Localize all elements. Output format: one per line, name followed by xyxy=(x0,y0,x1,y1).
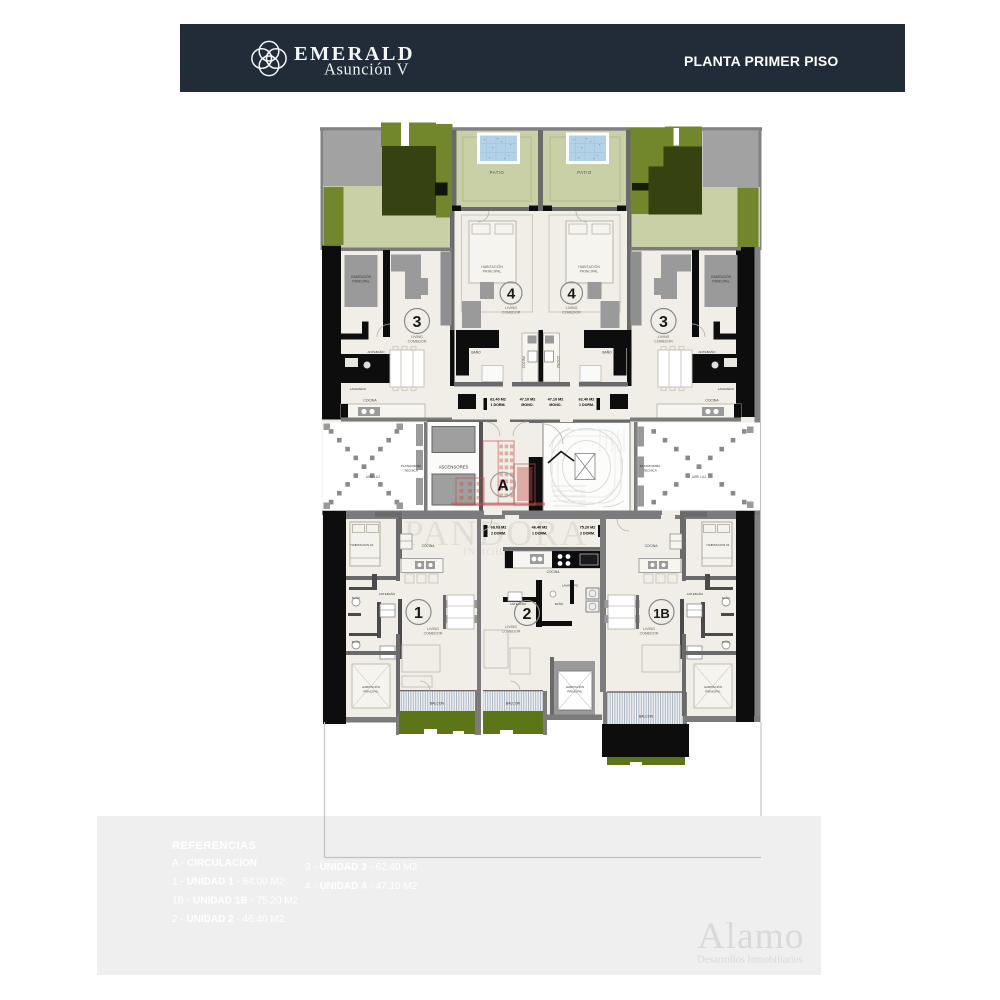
svg-text:PRINCIPAL: PRINCIPAL xyxy=(352,280,369,284)
svg-text:PLATAFORMA: PLATAFORMA xyxy=(640,464,661,468)
svg-text:LIVING: LIVING xyxy=(566,306,578,310)
svg-text:COMEDOR: COMEDOR xyxy=(562,311,581,315)
svg-text:47.10 M2: 47.10 M2 xyxy=(548,398,564,402)
svg-text:COCINA: COCINA xyxy=(522,355,526,368)
svg-text:LIVING: LIVING xyxy=(658,335,670,339)
svg-text:1 DORM.: 1 DORM. xyxy=(532,532,547,536)
svg-text:BAÑO: BAÑO xyxy=(352,639,361,644)
svg-text:BAÑO: BAÑO xyxy=(722,595,731,600)
svg-text:LIVING: LIVING xyxy=(505,306,517,310)
svg-text:BAÑO: BAÑO xyxy=(352,595,361,600)
svg-text:HABITACIÓN: HABITACIÓN xyxy=(481,264,503,269)
svg-text:BAÑO: BAÑO xyxy=(602,350,612,355)
svg-text:1 DORM.: 1 DORM. xyxy=(491,403,506,407)
svg-text:BAÑO: BAÑO xyxy=(471,350,481,355)
svg-text:4: 4 xyxy=(567,286,576,303)
svg-text:REFERENCIAS: REFERENCIAS xyxy=(172,840,256,852)
svg-text:A: A xyxy=(497,477,508,494)
svg-text:1 - UNIDAD 1 - 64.00 M2: 1 - UNIDAD 1 - 64.00 M2 xyxy=(172,877,285,888)
svg-text:COMEDOR: COMEDOR xyxy=(424,632,443,636)
svg-text:AIRE LUZ: AIRE LUZ xyxy=(692,475,706,479)
svg-text:A - CIRCULACION: A - CIRCULACION xyxy=(172,858,257,869)
svg-text:COMEDOR: COMEDOR xyxy=(408,340,427,344)
svg-text:PRINCIPAL: PRINCIPAL xyxy=(567,689,583,693)
svg-text:2 DORM.: 2 DORM. xyxy=(491,532,506,536)
svg-text:BALCON: BALCON xyxy=(430,702,444,706)
svg-text:COCINA: COCINA xyxy=(556,356,560,369)
svg-text:46.40 M2: 46.40 M2 xyxy=(532,526,548,530)
svg-text:2 DORM.: 2 DORM. xyxy=(580,532,595,536)
svg-text:PRINCIPAL: PRINCIPAL xyxy=(712,280,729,284)
svg-text:COCINA: COCINA xyxy=(422,544,436,548)
svg-text:PRINCIPAL: PRINCIPAL xyxy=(363,689,379,693)
svg-text:2: 2 xyxy=(523,606,532,623)
svg-text:Desarrollos Inmobiliarios: Desarrollos Inmobiliarios xyxy=(697,955,803,966)
svg-text:Alamo: Alamo xyxy=(697,916,804,957)
svg-text:COCINA: COCINA xyxy=(645,544,659,548)
svg-text:PRINCIPAL: PRINCIPAL xyxy=(483,270,502,274)
svg-text:4 - UNIDAD 4 - 47.10 M2: 4 - UNIDAD 4 - 47.10 M2 xyxy=(305,881,418,892)
svg-text:COCINA: COCINA xyxy=(705,399,719,403)
svg-text:COCINA: COCINA xyxy=(547,570,561,574)
svg-text:LAVADERO: LAVADERO xyxy=(718,387,735,391)
svg-text:HABITACIÓN: HABITACIÓN xyxy=(578,264,600,269)
svg-text:3: 3 xyxy=(413,314,422,331)
svg-text:PRINCIPAL: PRINCIPAL xyxy=(580,270,599,274)
svg-text:PLATAFORMA: PLATAFORMA xyxy=(401,464,422,468)
svg-text:ANTEBAÑO: ANTEBAÑO xyxy=(367,349,385,354)
svg-text:MONO.: MONO. xyxy=(521,403,533,407)
svg-text:47.10 M2: 47.10 M2 xyxy=(520,398,536,402)
svg-text:2 - UNIDAD 2 - 46.40 M2: 2 - UNIDAD 2 - 46.40 M2 xyxy=(172,914,285,925)
svg-text:62.40 M2: 62.40 M2 xyxy=(579,398,595,402)
svg-text:COMEDOR: COMEDOR xyxy=(640,632,659,636)
svg-text:1B: 1B xyxy=(653,606,670,621)
svg-text:BAÑO: BAÑO xyxy=(722,639,731,644)
svg-text:TECNICA: TECNICA xyxy=(404,469,419,473)
svg-text:HABITACIÓN: HABITACIÓN xyxy=(351,274,372,279)
svg-text:PATIO: PATIO xyxy=(577,170,592,175)
svg-text:1 DORM.: 1 DORM. xyxy=(579,403,594,407)
svg-text:ANTEBAÑO: ANTEBAÑO xyxy=(698,349,716,354)
svg-text:1B - UNIDAD 1B - 75.20 M2: 1B - UNIDAD 1B - 75.20 M2 xyxy=(172,895,299,906)
svg-text:COMEDOR: COMEDOR xyxy=(502,311,521,315)
svg-text:LIVING: LIVING xyxy=(427,627,439,631)
svg-text:HABITACIÓN: HABITACIÓN xyxy=(566,684,584,689)
svg-text:PLANTA PRIMER PISO: PLANTA PRIMER PISO xyxy=(684,53,839,69)
svg-text:LIVING: LIVING xyxy=(505,625,517,629)
svg-text:BALCON: BALCON xyxy=(506,702,520,706)
svg-text:ASCENSORES: ASCENSORES xyxy=(439,465,469,470)
svg-text:ANTEBAÑO: ANTEBAÑO xyxy=(687,591,704,596)
svg-text:3: 3 xyxy=(659,314,668,331)
svg-text:68.03 M2: 68.03 M2 xyxy=(491,526,507,530)
svg-text:HABITACIÓN: HABITACIÓN xyxy=(704,684,722,689)
svg-text:BAÑO: BAÑO xyxy=(555,601,564,606)
svg-text:TECNICA: TECNICA xyxy=(643,469,658,473)
svg-text:HABITACION 01: HABITACION 01 xyxy=(351,543,374,547)
svg-text:COCINA: COCINA xyxy=(363,399,377,403)
svg-text:4: 4 xyxy=(507,286,516,303)
svg-text:LAVADERO: LAVADERO xyxy=(350,387,367,391)
svg-text:75.20 M2: 75.20 M2 xyxy=(580,526,596,530)
svg-text:PATIO: PATIO xyxy=(490,170,505,175)
svg-text:1: 1 xyxy=(414,605,423,622)
svg-text:62.40 M2: 62.40 M2 xyxy=(490,398,506,402)
svg-text:LIVING: LIVING xyxy=(411,335,423,339)
svg-text:HABITACIÓN: HABITACIÓN xyxy=(711,274,732,279)
svg-text:ANTEBAÑO: ANTEBAÑO xyxy=(379,591,396,596)
svg-text:Asunción V: Asunción V xyxy=(324,60,409,79)
svg-text:3 - UNIDAD 3 - 62.40 M2: 3 - UNIDAD 3 - 62.40 M2 xyxy=(305,862,418,873)
svg-text:AIRE LUZ: AIRE LUZ xyxy=(366,475,380,479)
svg-text:HABITACION 01: HABITACION 01 xyxy=(707,543,730,547)
svg-text:LIVING: LIVING xyxy=(643,627,655,631)
svg-text:HABITACIÓN: HABITACIÓN xyxy=(362,684,380,689)
svg-text:BALCON: BALCON xyxy=(639,715,653,719)
svg-text:MONO.: MONO. xyxy=(549,403,561,407)
svg-text:COMEDOR: COMEDOR xyxy=(654,340,673,344)
svg-text:PRINCIPAL: PRINCIPAL xyxy=(705,689,721,693)
